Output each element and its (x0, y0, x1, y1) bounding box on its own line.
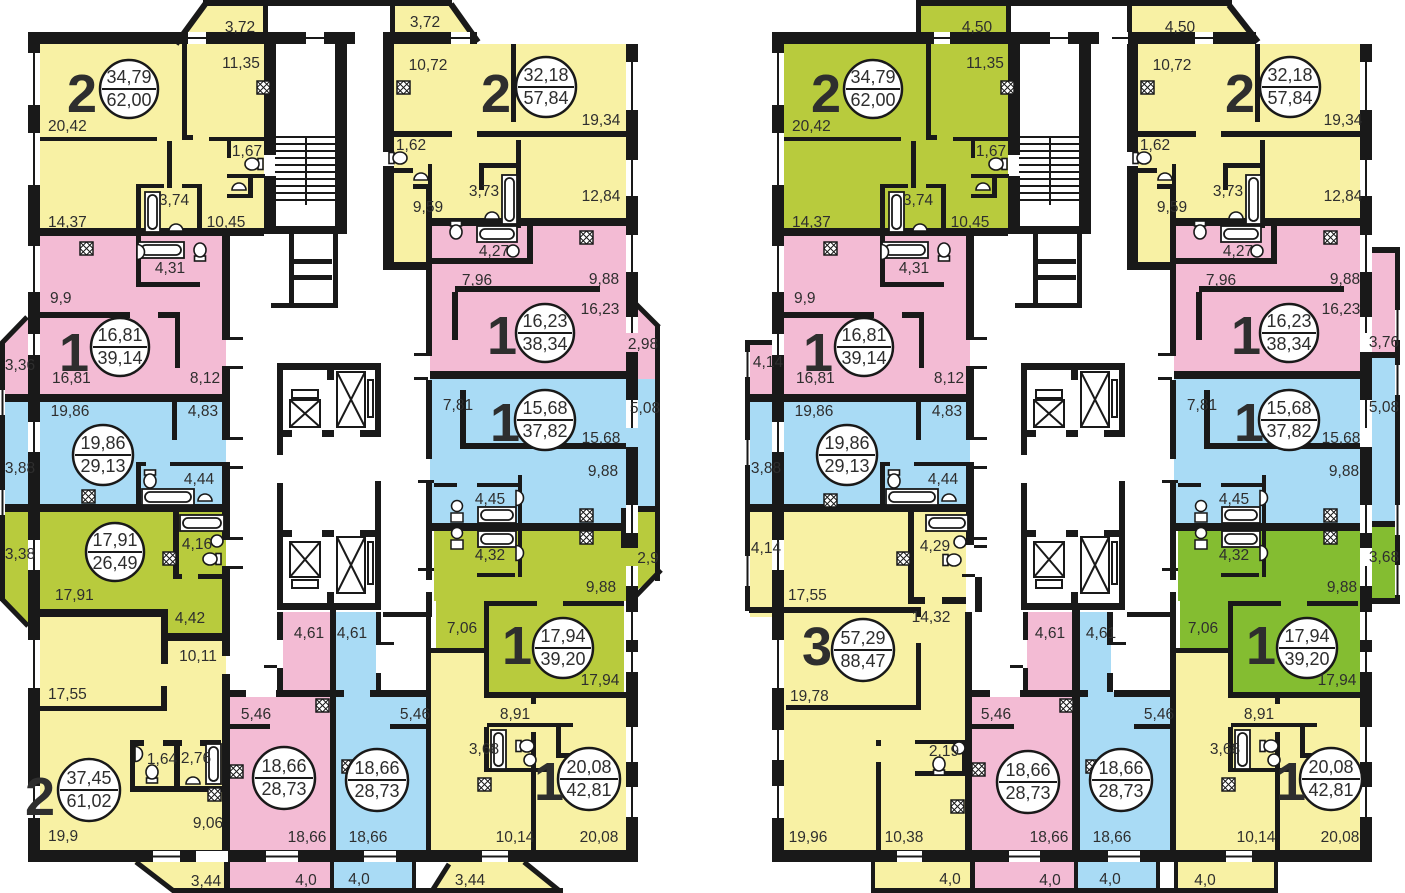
svg-text:3,36: 3,36 (5, 357, 35, 374)
svg-text:9,88: 9,88 (1329, 463, 1359, 480)
svg-text:2,9: 2,9 (637, 550, 659, 567)
svg-text:10,72: 10,72 (1153, 57, 1192, 74)
svg-text:4,29: 4,29 (920, 538, 950, 555)
svg-text:9,9: 9,9 (50, 290, 72, 307)
svg-text:19,86: 19,86 (824, 433, 869, 453)
svg-text:17,94: 17,94 (1284, 626, 1329, 646)
svg-text:16,81: 16,81 (841, 325, 886, 345)
svg-text:4,61: 4,61 (1035, 625, 1065, 642)
svg-text:4,45: 4,45 (1219, 491, 1249, 508)
svg-text:3,74: 3,74 (903, 192, 934, 209)
svg-text:9,59: 9,59 (413, 199, 443, 216)
svg-text:15,68: 15,68 (1266, 398, 1311, 418)
svg-text:12,84: 12,84 (582, 188, 621, 205)
svg-text:37,45: 37,45 (66, 768, 111, 788)
svg-text:3,44: 3,44 (191, 873, 222, 890)
svg-text:19,78: 19,78 (790, 688, 829, 705)
svg-text:18,66: 18,66 (288, 829, 327, 846)
svg-text:4,45: 4,45 (475, 491, 505, 508)
svg-text:3,73: 3,73 (1213, 183, 1243, 200)
svg-text:4,0: 4,0 (1039, 872, 1061, 889)
svg-text:7,06: 7,06 (1188, 620, 1218, 637)
svg-text:9,88: 9,88 (589, 271, 619, 288)
svg-text:16,23: 16,23 (581, 301, 620, 318)
svg-text:18,66: 18,66 (1098, 758, 1143, 778)
svg-text:2: 2 (25, 767, 55, 827)
svg-text:4,83: 4,83 (188, 403, 218, 420)
svg-text:4,0: 4,0 (939, 871, 961, 888)
svg-text:32,18: 32,18 (1267, 65, 1312, 85)
svg-text:42,81: 42,81 (1308, 780, 1353, 800)
svg-text:1: 1 (1231, 306, 1261, 366)
svg-text:9,88: 9,88 (1327, 579, 1357, 596)
svg-text:19,9: 19,9 (48, 828, 78, 845)
svg-text:11,35: 11,35 (966, 55, 1004, 72)
svg-text:1,64: 1,64 (147, 751, 178, 768)
svg-text:10,14: 10,14 (1237, 829, 1276, 846)
svg-text:4,50: 4,50 (962, 19, 993, 36)
svg-text:9,59: 9,59 (1157, 199, 1187, 216)
svg-text:14,32: 14,32 (912, 609, 951, 626)
svg-text:8,91: 8,91 (500, 706, 530, 723)
svg-text:12,84: 12,84 (1324, 188, 1363, 205)
svg-text:9,06: 9,06 (193, 815, 223, 832)
svg-text:14,37: 14,37 (48, 214, 87, 231)
svg-text:4,14: 4,14 (751, 540, 782, 557)
svg-text:7,81: 7,81 (1187, 397, 1217, 414)
svg-text:4,32: 4,32 (1219, 547, 1249, 564)
svg-text:2: 2 (67, 64, 97, 124)
svg-text:1,67: 1,67 (976, 143, 1006, 160)
svg-text:4,27: 4,27 (479, 243, 509, 260)
svg-text:5,08: 5,08 (1369, 399, 1399, 416)
svg-text:37,82: 37,82 (522, 421, 567, 441)
svg-text:15,68: 15,68 (1322, 430, 1361, 447)
svg-text:28,73: 28,73 (261, 779, 306, 799)
svg-text:5,46: 5,46 (400, 706, 430, 723)
svg-text:88,47: 88,47 (840, 651, 885, 671)
svg-text:4,0: 4,0 (1099, 871, 1121, 888)
svg-text:9,88: 9,88 (588, 463, 618, 480)
svg-text:10,11: 10,11 (179, 648, 217, 665)
svg-text:1: 1 (487, 306, 517, 366)
svg-text:2: 2 (811, 64, 841, 124)
svg-text:19,86: 19,86 (80, 433, 125, 453)
svg-text:34,79: 34,79 (106, 67, 151, 87)
svg-text:9,9: 9,9 (794, 290, 816, 307)
svg-text:16,23: 16,23 (1266, 311, 1311, 331)
svg-text:1: 1 (490, 393, 520, 453)
svg-text:11,35: 11,35 (222, 55, 260, 72)
svg-text:17,94: 17,94 (1318, 672, 1357, 689)
svg-text:20,08: 20,08 (580, 829, 619, 846)
svg-text:62,00: 62,00 (850, 90, 895, 110)
svg-text:19,86: 19,86 (795, 403, 834, 420)
svg-text:17,94: 17,94 (581, 672, 620, 689)
svg-text:39,20: 39,20 (1284, 649, 1329, 669)
svg-text:2,76: 2,76 (181, 750, 211, 767)
svg-text:42,81: 42,81 (566, 780, 611, 800)
svg-text:4,44: 4,44 (184, 471, 215, 488)
svg-text:7,06: 7,06 (447, 620, 477, 637)
svg-text:4,0: 4,0 (1194, 872, 1216, 889)
svg-text:10,14: 10,14 (496, 829, 535, 846)
svg-text:7,96: 7,96 (462, 272, 492, 289)
svg-text:10,45: 10,45 (951, 214, 990, 231)
svg-text:3,44: 3,44 (455, 872, 486, 889)
svg-text:4,0: 4,0 (348, 871, 370, 888)
svg-text:10,38: 10,38 (885, 829, 924, 846)
svg-text:3,68: 3,68 (469, 741, 499, 758)
svg-text:17,94: 17,94 (540, 626, 585, 646)
svg-text:19,34: 19,34 (1324, 112, 1363, 129)
svg-text:29,13: 29,13 (80, 456, 125, 476)
svg-text:29,13: 29,13 (824, 456, 869, 476)
svg-text:1: 1 (1234, 393, 1264, 453)
svg-text:4,27: 4,27 (1223, 243, 1253, 260)
svg-text:2,19: 2,19 (929, 743, 959, 760)
svg-text:18,66: 18,66 (1093, 829, 1132, 846)
svg-text:19,86: 19,86 (51, 403, 90, 420)
svg-text:28,73: 28,73 (354, 781, 399, 801)
svg-text:4,61: 4,61 (337, 625, 367, 642)
svg-text:20,42: 20,42 (792, 118, 831, 135)
svg-text:3: 3 (802, 617, 832, 677)
svg-text:1: 1 (1246, 616, 1276, 676)
svg-text:1,67: 1,67 (232, 143, 262, 160)
svg-text:18,66: 18,66 (1005, 760, 1050, 780)
svg-text:3,68: 3,68 (1369, 549, 1399, 566)
svg-text:7,96: 7,96 (1206, 272, 1236, 289)
svg-text:4,42: 4,42 (175, 610, 205, 627)
svg-text:5,46: 5,46 (981, 706, 1011, 723)
svg-text:4,32: 4,32 (475, 547, 505, 564)
svg-text:16,81: 16,81 (97, 325, 142, 345)
svg-text:17,91: 17,91 (92, 530, 137, 550)
svg-text:57,29: 57,29 (840, 628, 885, 648)
svg-text:1,62: 1,62 (1140, 137, 1170, 154)
svg-text:18,66: 18,66 (349, 829, 388, 846)
svg-text:38,34: 38,34 (522, 334, 567, 354)
svg-text:16,81: 16,81 (52, 370, 91, 387)
svg-text:10,72: 10,72 (409, 57, 448, 74)
svg-text:3,72: 3,72 (410, 14, 440, 31)
svg-text:18,66: 18,66 (1030, 829, 1069, 846)
svg-text:32,18: 32,18 (523, 65, 568, 85)
svg-text:4,50: 4,50 (1165, 19, 1196, 36)
svg-text:1,62: 1,62 (396, 137, 426, 154)
svg-text:8,12: 8,12 (934, 370, 964, 387)
svg-text:9,88: 9,88 (1330, 271, 1360, 288)
svg-text:5,08: 5,08 (630, 400, 660, 417)
svg-text:2: 2 (1225, 64, 1255, 124)
svg-text:3,68: 3,68 (1210, 741, 1240, 758)
svg-text:18,66: 18,66 (261, 756, 306, 776)
svg-text:4,14: 4,14 (753, 354, 784, 371)
svg-text:57,84: 57,84 (523, 88, 568, 108)
svg-text:38,34: 38,34 (1266, 334, 1311, 354)
svg-text:15,68: 15,68 (522, 398, 567, 418)
svg-text:14,37: 14,37 (792, 214, 831, 231)
svg-text:16,81: 16,81 (796, 370, 835, 387)
svg-text:15,68: 15,68 (582, 430, 621, 447)
svg-text:26,49: 26,49 (92, 553, 137, 573)
svg-text:3,76: 3,76 (1369, 334, 1399, 351)
svg-text:39,14: 39,14 (841, 348, 886, 368)
svg-text:39,20: 39,20 (540, 649, 585, 669)
svg-text:4,61: 4,61 (1086, 625, 1116, 642)
svg-text:4,83: 4,83 (932, 403, 962, 420)
svg-text:20,42: 20,42 (48, 118, 87, 135)
svg-text:4,61: 4,61 (294, 625, 324, 642)
svg-text:9,88: 9,88 (586, 579, 616, 596)
svg-text:17,91: 17,91 (55, 587, 94, 604)
svg-text:5,46: 5,46 (241, 706, 271, 723)
svg-text:5,46: 5,46 (1144, 706, 1174, 723)
svg-text:28,73: 28,73 (1005, 783, 1050, 803)
svg-text:1: 1 (1276, 752, 1306, 812)
svg-text:20,08: 20,08 (566, 757, 611, 777)
svg-text:57,84: 57,84 (1267, 88, 1312, 108)
svg-text:2,98: 2,98 (628, 336, 658, 353)
svg-text:62,00: 62,00 (106, 90, 151, 110)
svg-text:34,79: 34,79 (850, 67, 895, 87)
svg-text:3,74: 3,74 (159, 192, 190, 209)
svg-text:4,16: 4,16 (182, 536, 212, 553)
svg-text:3,88: 3,88 (751, 460, 781, 477)
svg-text:7,81: 7,81 (443, 397, 473, 414)
svg-text:19,96: 19,96 (789, 829, 828, 846)
svg-text:20,08: 20,08 (1321, 829, 1360, 846)
svg-text:61,02: 61,02 (66, 791, 111, 811)
svg-text:3,73: 3,73 (469, 183, 499, 200)
svg-text:18,66: 18,66 (354, 758, 399, 778)
svg-text:1: 1 (502, 616, 532, 676)
svg-text:17,55: 17,55 (48, 686, 87, 703)
svg-text:4,0: 4,0 (295, 872, 317, 889)
svg-text:1: 1 (534, 752, 564, 812)
svg-text:16,23: 16,23 (1322, 301, 1361, 318)
svg-text:28,73: 28,73 (1098, 781, 1143, 801)
svg-text:39,14: 39,14 (97, 348, 142, 368)
svg-text:3,72: 3,72 (225, 19, 255, 36)
svg-text:3,88: 3,88 (5, 460, 35, 477)
svg-text:16,23: 16,23 (522, 311, 567, 331)
svg-text:2: 2 (481, 64, 511, 124)
svg-text:3,38: 3,38 (5, 546, 35, 563)
svg-text:19,34: 19,34 (582, 112, 621, 129)
svg-text:10,45: 10,45 (207, 214, 246, 231)
svg-text:20,08: 20,08 (1308, 757, 1353, 777)
svg-text:4,44: 4,44 (928, 471, 959, 488)
svg-text:4,31: 4,31 (155, 260, 185, 277)
svg-text:37,82: 37,82 (1266, 421, 1311, 441)
svg-text:4,31: 4,31 (899, 260, 929, 277)
svg-text:8,12: 8,12 (190, 370, 220, 387)
svg-text:17,55: 17,55 (788, 587, 827, 604)
svg-text:8,91: 8,91 (1244, 706, 1274, 723)
